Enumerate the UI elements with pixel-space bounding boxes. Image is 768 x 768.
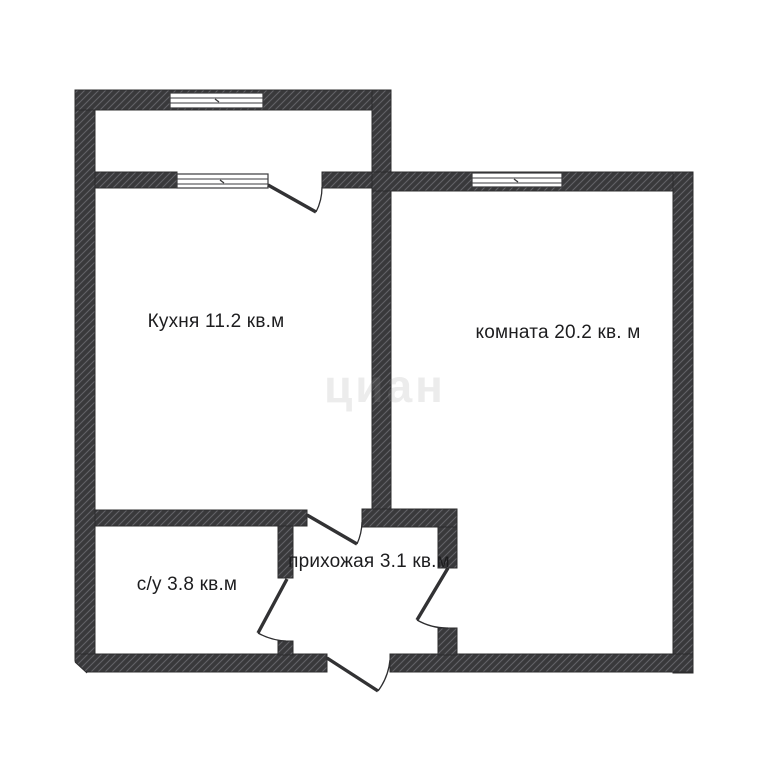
floorplan-canvas: циан bbox=[0, 0, 768, 768]
wall-balcony-kitchen-right bbox=[322, 172, 372, 188]
door-entrance bbox=[327, 658, 390, 691]
window-kitchen bbox=[177, 174, 268, 188]
doors bbox=[258, 185, 448, 691]
wall-bathroom-top bbox=[95, 510, 307, 526]
wall-balcony-kitchen-left bbox=[95, 172, 177, 188]
door-room bbox=[417, 568, 448, 628]
wall-exterior-right bbox=[673, 172, 693, 673]
room-label-hallway: прихожая 3.1 кв.м bbox=[288, 551, 450, 573]
room-label-bathroom: с/у 3.8 кв.м bbox=[137, 574, 237, 596]
door-bathroom bbox=[258, 579, 287, 641]
door-balcony bbox=[268, 185, 322, 212]
room-label-room: комната 20.2 кв. м bbox=[475, 322, 640, 344]
door-kitchen-hallway bbox=[307, 515, 362, 544]
wall-bathroom-right-lower bbox=[278, 641, 293, 655]
watermark-text: циан bbox=[324, 359, 446, 413]
wall-hallway-right-lower bbox=[438, 628, 457, 655]
window-balcony bbox=[170, 93, 263, 108]
wall-bottom-left bbox=[75, 654, 327, 672]
wall-bottom-right bbox=[390, 654, 693, 672]
wall-kitchen-room bbox=[372, 191, 391, 509]
wall-hallway-junction bbox=[362, 509, 457, 527]
room-label-kitchen: Кухня 11.2 кв.м bbox=[148, 311, 285, 333]
wall-exterior-left bbox=[75, 90, 95, 672]
window-room bbox=[472, 173, 562, 187]
